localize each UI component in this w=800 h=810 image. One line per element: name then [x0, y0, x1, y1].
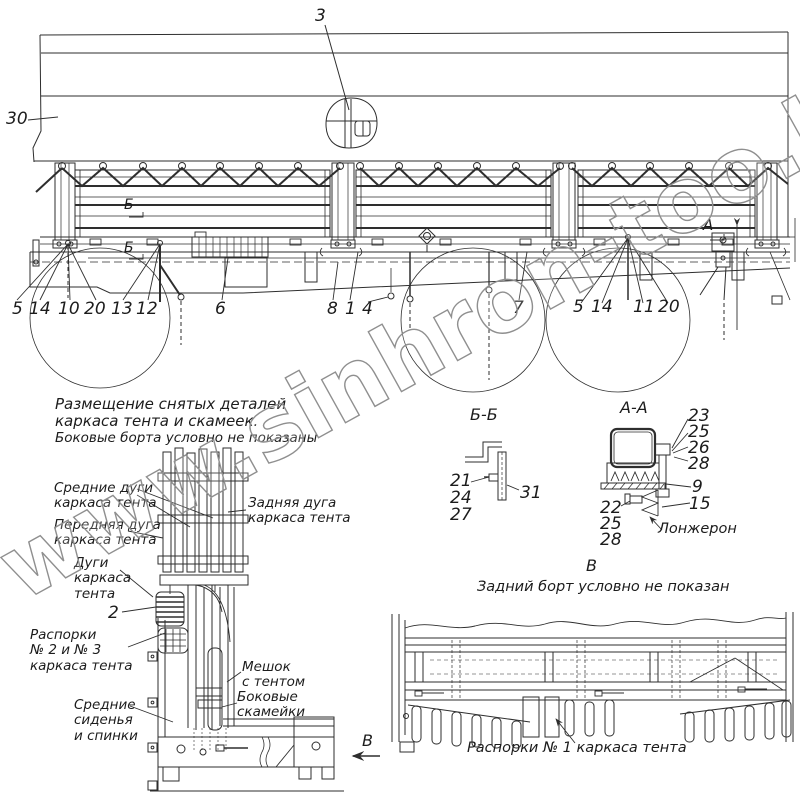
storage-note: Боковые борта условно не показаны: [55, 431, 317, 446]
callout-8: 8: [327, 299, 338, 319]
view-v-drawing: [392, 612, 793, 752]
label-side-benches: Боковые скамейки: [237, 690, 305, 721]
callout-11: 11: [633, 297, 655, 317]
view-arrow-v-label: В: [362, 731, 373, 750]
callout-28-bottom: 28: [600, 530, 622, 550]
section-mark-a: А: [703, 216, 713, 234]
callout-3: 3: [315, 6, 326, 26]
section-mark-b-upper: Б: [124, 197, 134, 213]
view-v-caption: Распорки № 1 каркаса тента: [467, 740, 687, 757]
label-middle-bows: Средние дуги каркаса тента: [54, 481, 157, 512]
section-aa-title: А-А: [620, 399, 648, 417]
label-spacers-2-3: Распорки № 2 и № 3 каркаса тента: [30, 628, 133, 674]
callout-6: 6: [215, 299, 226, 319]
callout-12: 12: [136, 299, 158, 319]
callout-5-rear: 5: [573, 297, 584, 317]
callout-13: 13: [111, 299, 133, 319]
chassis: [30, 218, 795, 293]
callout-15: 15: [689, 494, 711, 514]
label-longeron: Лонжерон: [658, 521, 737, 538]
view-v-title: В: [586, 557, 597, 575]
section-mark-b-lower: Б: [124, 240, 134, 256]
label-middle-seats: Средние сиденья и спинки: [74, 698, 138, 744]
drawing-page: www.sinhron-too.kz 3 30 5 14 10 20 13 12…: [0, 0, 800, 810]
leader-lines: [17, 212, 724, 303]
rear-latch-mechanism: [700, 225, 790, 340]
callout-10: 10: [58, 299, 80, 319]
tent-lacing: [36, 168, 788, 192]
section-bb-title: Б-Б: [470, 406, 498, 424]
callout-31: 31: [520, 483, 542, 503]
callout-1: 1: [345, 299, 356, 319]
label-rear-bow: Задняя дуга каркаса тента: [248, 496, 351, 527]
label-bows: Дуги каркаса тента: [74, 556, 131, 602]
callout-7: 7: [513, 298, 524, 318]
tent-grommets: [59, 163, 772, 170]
callout-14-rear: 14: [591, 297, 613, 317]
storage-title: Размещение снятых деталей каркаса тента …: [55, 396, 286, 430]
callout-30: 30: [6, 109, 28, 129]
label-tent-bag: Мешок с тентом: [242, 660, 305, 691]
section-bb-drawing: [465, 442, 519, 500]
label-front-bow: Передняя дуга каркаса тента: [54, 518, 161, 549]
callout-2: 2: [108, 603, 119, 623]
callout-5-front: 5: [12, 299, 23, 319]
view-v-note: Задний борт условно не показан: [477, 579, 730, 596]
callout-20-rear: 20: [658, 297, 680, 317]
callout-14-front: 14: [29, 299, 51, 319]
callout-28-top: 28: [688, 454, 710, 474]
wheels: [30, 248, 690, 392]
callout-27: 27: [450, 505, 472, 525]
callout-20-front: 20: [84, 299, 106, 319]
callout-4: 4: [362, 299, 373, 319]
side-board-panels: [75, 170, 755, 237]
